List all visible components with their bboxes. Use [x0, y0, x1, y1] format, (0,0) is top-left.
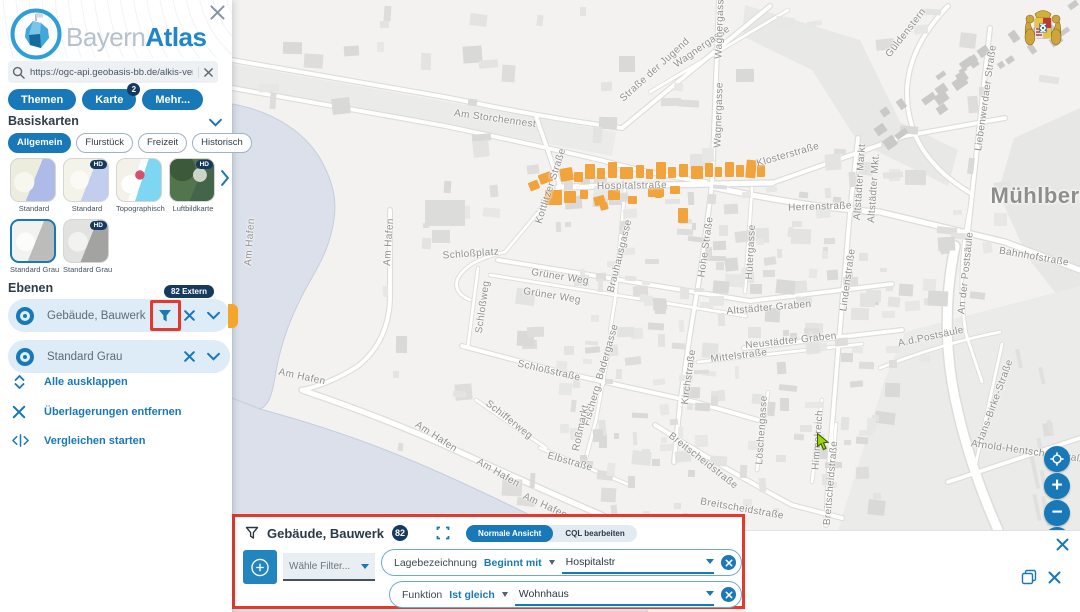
map-block: [383, 6, 391, 22]
map-block: [688, 470, 695, 477]
map-block: [694, 403, 710, 412]
map-block: [856, 467, 869, 480]
map-block: [953, 210, 962, 216]
map-block: [757, 238, 764, 245]
close-panel-icon[interactable]: [1055, 537, 1070, 557]
hd-badge: HD: [90, 221, 107, 230]
basemap-chip-freizeit[interactable]: Freizeit: [138, 133, 187, 153]
filtered-building: [580, 190, 588, 199]
filter-field-label: Lagebezeichnung: [394, 557, 477, 569]
map-block: [344, 46, 359, 58]
map-block: [593, 127, 603, 143]
action-label: Alle ausklappen: [44, 376, 128, 388]
chevron-down-icon: [706, 559, 714, 564]
bayernatlas-logo: [10, 8, 62, 65]
filtered-building: [736, 165, 744, 177]
filter-field-label: Funktion: [402, 589, 442, 601]
sidebar-header: BayernAtlas: [0, 0, 232, 58]
collapse-basiskarten-icon[interactable]: [209, 114, 222, 132]
choose-filter-dropdown[interactable]: Wähle Filter...: [283, 553, 375, 581]
map-block: [564, 181, 573, 190]
hd-badge: HD: [196, 160, 213, 169]
map-block: [928, 290, 949, 306]
search-bar: [8, 61, 218, 83]
town-label: Mühlberg: [991, 183, 1080, 209]
map-block: [472, 140, 490, 158]
map-block: [468, 99, 478, 107]
action-label: Überlagerungen entfernen: [44, 406, 182, 418]
basemap-thumb[interactable]: HDStandard: [63, 158, 111, 213]
bayernatlas-app: Am StorchennestStraße der JugendWagnerga…: [0, 0, 1080, 612]
action-expand-all[interactable]: Alle ausklappen: [12, 374, 182, 390]
filtered-building: [679, 164, 688, 177]
layer-row: Gebäude, Bauwerk82 Extern: [8, 299, 230, 332]
filter-value-text: Wohnhaus: [519, 588, 702, 600]
map-block: [826, 270, 838, 281]
filter-row: LagebezeichnungBeginnt mitHospitalstr: [381, 549, 742, 576]
map-block: [652, 459, 660, 466]
tab-badge: 2: [127, 83, 140, 96]
add-filter-button[interactable]: [243, 550, 277, 584]
map-block: [397, 442, 403, 450]
map-block: [673, 503, 680, 509]
map-block: [383, 286, 389, 297]
filter-value-input[interactable]: Hospitalstr: [562, 552, 714, 574]
layer-drag-tab[interactable]: [228, 304, 238, 328]
action-remove-overlays[interactable]: Überlagerungen entfernen: [12, 405, 182, 419]
map-block: [659, 403, 670, 415]
layer-expand-icon[interactable]: [207, 352, 220, 361]
main-tabs: ThemenKarte2Mehr...: [8, 89, 203, 110]
map-block: [711, 396, 719, 406]
tab-themen[interactable]: Themen: [8, 89, 76, 110]
map-block: [888, 297, 901, 308]
layer-remove-icon[interactable]: [183, 309, 196, 322]
map-block: [809, 269, 817, 279]
layer-actions: Alle ausklappenÜberlagerungen entfernenV…: [12, 374, 182, 462]
map-block: [967, 95, 979, 112]
layer-visibility-icon[interactable]: [16, 307, 34, 325]
map-block: [527, 326, 544, 337]
map-block: [444, 180, 451, 193]
layer-expand-icon[interactable]: [207, 311, 220, 320]
map-block: [840, 417, 849, 430]
basemap-thumb-image: [10, 158, 56, 202]
filtered-building: [574, 172, 583, 182]
hd-badge: HD: [90, 160, 107, 169]
filtered-building: [646, 169, 653, 179]
basemap-chip-allgemein[interactable]: Allgemein: [8, 133, 71, 153]
map-block: [899, 283, 913, 296]
filtered-building: [668, 167, 676, 178]
basemap-chip-flurstück[interactable]: Flurstück: [76, 133, 133, 153]
map-block: [694, 288, 704, 292]
map-block: [653, 378, 665, 385]
map-block: [821, 251, 828, 260]
map-block: [607, 462, 616, 476]
map-block: [994, 213, 1008, 227]
compare-icon: [12, 434, 30, 447]
basemap-thumbnails: StandardHDStandardTopographischHDLuftbil…: [10, 158, 222, 274]
map-block: [565, 222, 571, 227]
close-icon[interactable]: [1047, 570, 1062, 585]
basemap-thumb-label: Standard Grau: [63, 265, 111, 274]
feature-filter-panel: Gebäude, Bauwerk 82 Normale AnsichtCQL b…: [232, 514, 745, 609]
layer-extern-badge: 82 Extern: [164, 285, 214, 298]
map-block: [597, 279, 602, 292]
layer-list: Gebäude, Bauwerk82 ExternStandard Grau: [8, 299, 230, 381]
chevron-down-icon: [502, 592, 508, 597]
tab-label: Karte: [95, 94, 123, 106]
filtered-building: [691, 166, 703, 179]
basiskarten-header: Basiskarten: [8, 114, 79, 128]
map-block: [860, 293, 876, 307]
filtered-building: [705, 163, 713, 177]
tab-mehr[interactable]: Mehr...: [142, 89, 203, 110]
map-block: [269, 92, 276, 108]
map-block: [259, 84, 279, 93]
filtered-building: [745, 160, 757, 179]
map-block: [736, 69, 754, 82]
search-icon: [12, 66, 25, 79]
map-block: [739, 465, 747, 478]
map-block: [776, 455, 786, 462]
map-block: [763, 256, 776, 265]
map-block: [421, 52, 432, 69]
map-block: [625, 356, 641, 365]
map-block: [792, 221, 802, 227]
layer-filter-icon[interactable]: [158, 309, 172, 323]
map-block: [800, 425, 812, 432]
secondary-bottom-panel: [745, 530, 1080, 612]
map-block: [592, 429, 603, 443]
map-block: [564, 346, 574, 355]
map-block: [938, 236, 956, 251]
map-block: [527, 165, 540, 175]
app-title-light: Bayern: [66, 22, 145, 52]
map-block: [719, 225, 728, 236]
map-block: [780, 398, 789, 411]
map-block: [873, 493, 881, 499]
close-sidebar-icon[interactable]: [209, 4, 226, 26]
street-label: Herrenstraße: [788, 200, 852, 213]
map-block: [739, 234, 745, 241]
basemap-thumb-image: [10, 219, 56, 263]
basemap-thumb-label: Standard Grau: [10, 265, 58, 274]
filter-operator-dropdown[interactable]: Ist gleich: [449, 589, 495, 601]
map-block: [283, 42, 302, 54]
map-block: [432, 230, 450, 243]
action-label: Vergleichen starten: [44, 435, 146, 447]
layer-name: Standard Grau: [47, 351, 183, 363]
map-block: [678, 319, 684, 331]
map-block: [799, 192, 809, 199]
map-block: [959, 32, 977, 48]
map-block: [658, 334, 665, 347]
map-block: [396, 336, 407, 353]
map-block: [670, 419, 679, 425]
chevron-down-icon: [361, 564, 369, 569]
map-block: [882, 311, 895, 318]
map-block: [742, 192, 751, 199]
view-toggle-cql[interactable]: CQL bearbeiten: [553, 525, 636, 542]
basemap-thumb-image: HD: [169, 158, 215, 202]
ebenen-header: Ebenen: [8, 281, 53, 295]
map-block: [642, 449, 650, 455]
map-block: [885, 346, 898, 353]
map-block: [855, 437, 868, 445]
clear-search-icon[interactable]: [198, 67, 214, 78]
map-block: [713, 184, 727, 189]
choose-filter-placeholder: Wähle Filter...: [289, 561, 361, 572]
app-title-bold: Atlas: [145, 22, 206, 52]
filter-value-text: Hospitalstr: [566, 556, 702, 568]
map-block: [867, 499, 886, 515]
map-block: [678, 99, 699, 107]
map-block: [393, 371, 400, 378]
street-label: Wagnergasse: [712, 82, 725, 148]
map-block: [482, 207, 500, 218]
filter-row: FunktionIst gleichWohnhaus: [389, 581, 742, 608]
map-block: [380, 20, 389, 27]
basemap-thumb[interactable]: HDLuftbildkarte: [169, 158, 217, 213]
eye-pupil: [20, 352, 30, 362]
map-block: [601, 487, 617, 502]
map-block: [501, 65, 515, 83]
basemap-thumb-image: HD: [63, 158, 109, 202]
search-input[interactable]: [28, 66, 195, 79]
map-block: [479, 59, 498, 69]
expand-all-icon: [12, 374, 30, 390]
layer-icon-group: [158, 309, 220, 323]
map-block: [694, 370, 709, 375]
map-block: [723, 203, 737, 214]
chevron-down-icon: [549, 560, 555, 565]
map-block: [591, 315, 600, 322]
thumbnails-next-icon[interactable]: [220, 170, 230, 191]
map-block: [776, 279, 796, 295]
map-block: [748, 327, 761, 338]
map-block: [715, 262, 723, 270]
chevron-down-icon: [706, 591, 714, 596]
map-block: [712, 280, 729, 294]
basemap-thumb[interactable]: Topographisch: [116, 158, 164, 213]
map-block: [425, 200, 465, 226]
map-block: [844, 440, 851, 445]
layer-name: Gebäude, Bauwerk: [47, 310, 158, 322]
duplicate-icon[interactable]: [1021, 569, 1037, 585]
map-block: [377, 42, 384, 52]
filtered-building: [656, 162, 666, 179]
filtered-building: [628, 196, 637, 204]
filtered-building: [620, 167, 633, 179]
remove-overlays-icon: [12, 405, 30, 419]
tab-label: Mehr...: [155, 94, 190, 106]
map-block: [970, 291, 985, 300]
map-block: [922, 278, 935, 291]
map-block: [332, 97, 352, 114]
filtered-building: [655, 191, 662, 198]
expand-panel-icon[interactable]: [436, 526, 450, 540]
map-block: [841, 353, 853, 362]
basemap-thumb[interactable]: Standard: [10, 158, 58, 213]
mouse-cursor: [816, 433, 832, 457]
view-toggle[interactable]: Normale AnsichtCQL bearbeiten: [466, 525, 637, 542]
basemap-thumb[interactable]: HDStandard Grau: [63, 219, 111, 274]
geolocate-button[interactable]: [1044, 446, 1070, 472]
map-block: [643, 295, 652, 306]
map-block: [701, 148, 713, 163]
map-block: [605, 379, 614, 384]
filtered-building: [608, 162, 617, 178]
map-block: [758, 478, 766, 492]
map-block: [885, 286, 892, 291]
tab-karte[interactable]: Karte2: [82, 89, 136, 110]
basemap-thumb-label: Standard: [10, 204, 58, 213]
map-block: [653, 301, 667, 311]
map-block: [880, 268, 887, 273]
map-block: [859, 430, 873, 436]
map-block: [919, 355, 930, 362]
map-block: [679, 287, 688, 299]
map-block: [560, 424, 569, 433]
app-title: BayernAtlas: [66, 22, 206, 53]
filtered-building: [670, 186, 680, 194]
street-label: Hospitalstraße: [597, 180, 667, 192]
map-block: [833, 148, 845, 154]
map-block: [585, 346, 600, 354]
map-block: [695, 435, 709, 448]
remove-filter-button[interactable]: [721, 587, 736, 602]
filtered-building: [597, 168, 605, 179]
filtered-building: [564, 191, 576, 203]
sidebar: BayernAtlas ThemenKarte2Mehr... Basiskar…: [0, 0, 232, 612]
map-block: [905, 170, 926, 186]
map-block: [904, 301, 919, 312]
map-block: [712, 241, 726, 251]
map-block: [859, 362, 874, 370]
map-block: [735, 366, 740, 379]
map-block: [820, 343, 827, 350]
map-block: [627, 476, 634, 488]
map-block: [582, 359, 591, 365]
map-block: [824, 238, 835, 245]
map-block: [616, 369, 622, 380]
filter-operator-dropdown[interactable]: Beginnt mit: [484, 557, 542, 569]
map-block: [889, 359, 897, 367]
map-block: [619, 56, 636, 72]
filter-panel-title: Gebäude, Bauwerk: [267, 526, 384, 541]
map-block: [779, 384, 798, 391]
map-block: [558, 382, 572, 395]
basemap-thumb-label: Topographisch: [116, 204, 164, 213]
map-block: [763, 270, 775, 277]
map-block: [851, 346, 863, 353]
map-block: [688, 192, 695, 206]
view-toggle-normal[interactable]: Normale Ansicht: [466, 525, 553, 542]
map-block: [469, 13, 488, 27]
street-label: Wagnergasse: [713, 0, 726, 59]
basemap-thumb-image: HD: [63, 219, 109, 263]
map-block: [709, 296, 724, 306]
tab-label: Themen: [21, 94, 63, 106]
layer-visibility-icon[interactable]: [16, 348, 34, 366]
filtered-building: [678, 208, 688, 223]
filtered-building: [715, 167, 722, 177]
action-compare[interactable]: Vergleichen starten: [12, 434, 182, 447]
map-block: [805, 401, 824, 408]
map-block: [422, 237, 432, 249]
layer-icon-group: [183, 350, 220, 363]
layer-row: Standard Grau: [8, 340, 230, 373]
map-block: [677, 228, 694, 235]
map-block: [824, 188, 831, 198]
bavaria-coat-of-arms: [1020, 7, 1066, 52]
map-block: [633, 432, 638, 445]
map-block: [718, 313, 726, 326]
layer-remove-icon[interactable]: [183, 350, 196, 363]
map-block: [790, 228, 811, 244]
basemap-thumb-label: Luftbildkarte: [169, 204, 217, 213]
remove-filter-button[interactable]: [721, 555, 736, 570]
map-block: [777, 362, 787, 374]
map-block: [645, 259, 659, 264]
map-block: [777, 249, 782, 258]
eye-pupil: [20, 311, 30, 321]
map-block: [625, 275, 636, 281]
map-block: [859, 253, 868, 261]
filter-rows: LagebezeichnungBeginnt mitHospitalstrFun…: [381, 549, 742, 608]
filtered-building: [725, 162, 734, 177]
zoom-in-button[interactable]: +: [1044, 473, 1070, 499]
map-block: [660, 444, 674, 452]
map-block: [850, 380, 863, 387]
map-block: [580, 7, 586, 16]
map-block: [623, 208, 638, 218]
map-block: [601, 82, 612, 91]
zoom-out-button[interactable]: −: [1044, 500, 1070, 526]
map-block: [983, 241, 994, 253]
result-count-badge: 82: [392, 525, 408, 541]
map-block: [673, 82, 683, 92]
map-block: [614, 433, 619, 440]
basemap-chip-historisch[interactable]: Historisch: [192, 133, 252, 153]
basemap-thumb-image: [116, 158, 162, 202]
basemap-category-chips: AllgemeinFlurstückFreizeitHistorisch: [8, 133, 252, 153]
map-block: [632, 412, 649, 418]
filter-outline-icon: [245, 526, 259, 540]
map-block: [304, 53, 324, 69]
filter-panel-header: Gebäude, Bauwerk 82 Normale AnsichtCQL b…: [235, 517, 742, 545]
map-block: [885, 383, 901, 397]
map-block: [724, 258, 738, 272]
basemap-thumb-label: Standard: [63, 204, 111, 213]
filtered-building: [585, 164, 595, 179]
map-block: [824, 153, 841, 170]
map-block: [555, 222, 561, 233]
map-block: [750, 284, 763, 295]
map-block: [665, 199, 680, 204]
basemap-thumb[interactable]: Standard Grau: [10, 219, 58, 274]
filter-value-input[interactable]: Wohnhaus: [515, 584, 714, 606]
map-block: [708, 193, 716, 203]
map-block: [489, 184, 498, 197]
map-block: [672, 343, 685, 350]
map-block: [851, 308, 869, 321]
filtered-building: [636, 165, 644, 178]
